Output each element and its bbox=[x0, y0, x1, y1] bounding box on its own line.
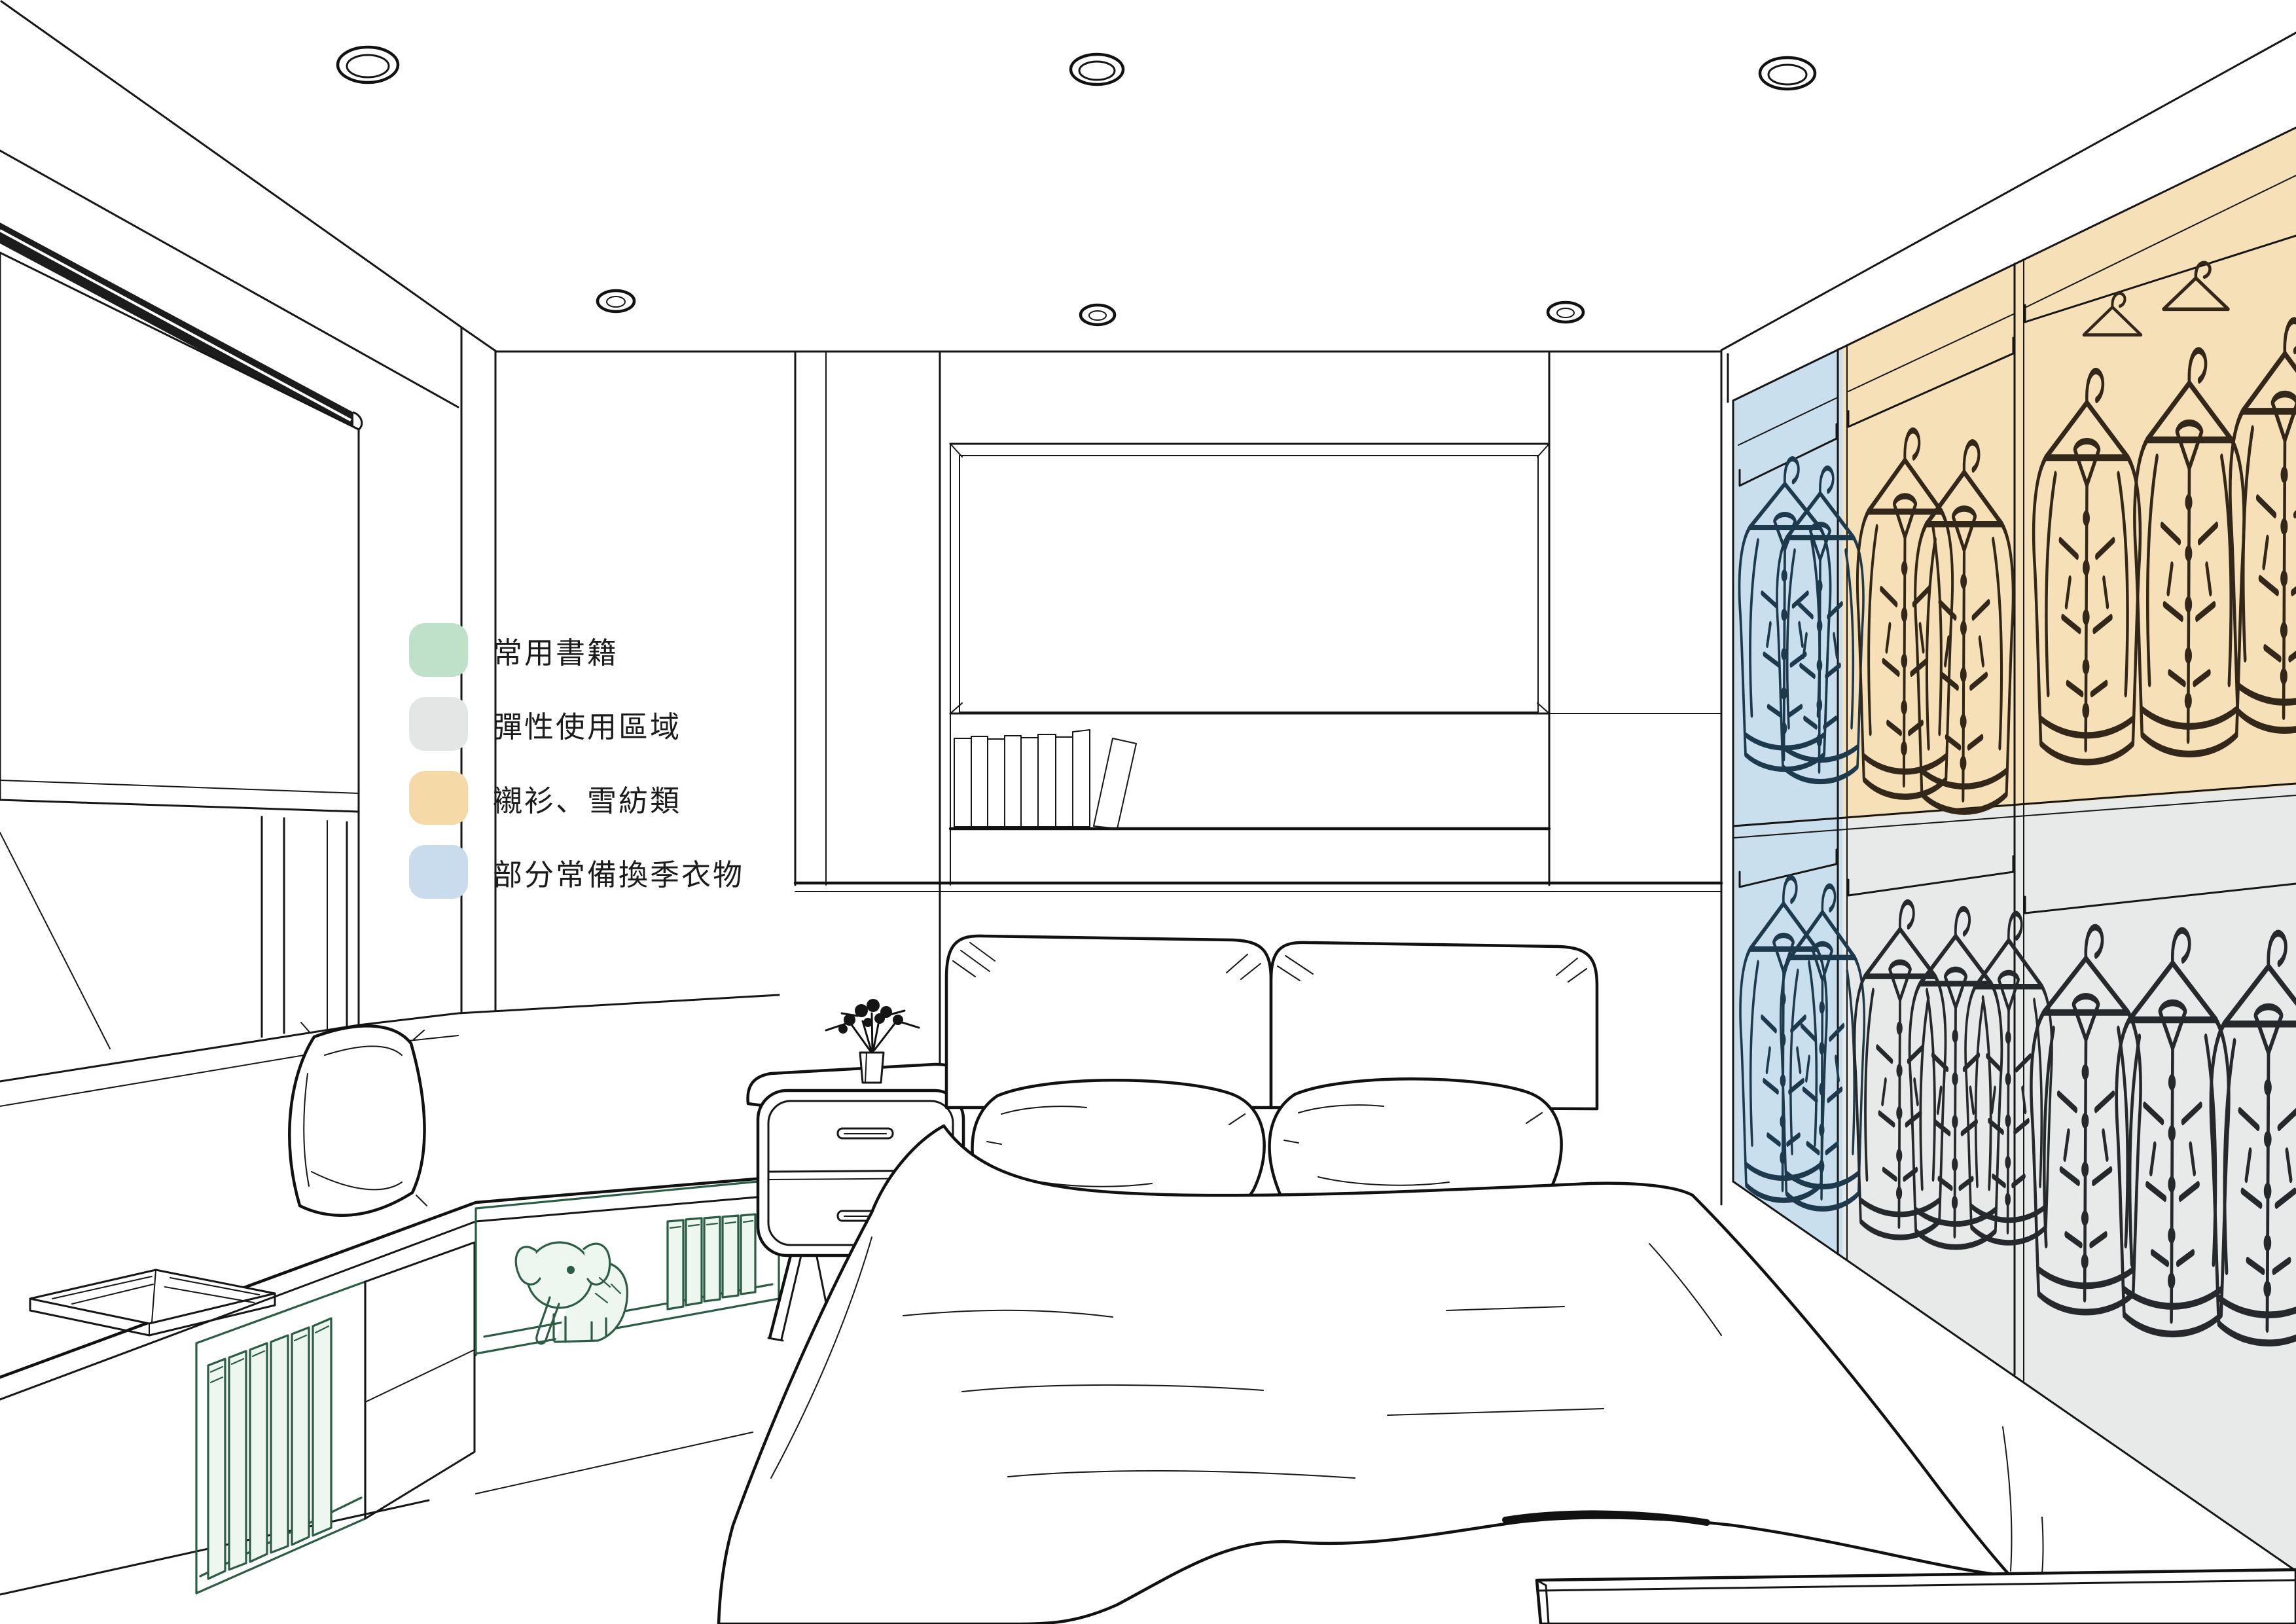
legend-label-seasonal: 部分常備換季衣物 bbox=[493, 851, 744, 893]
foot-bench bbox=[1537, 1570, 2296, 1624]
legend-item-shirts: 襯衫、雪紡類 bbox=[409, 771, 744, 825]
headboard-platform bbox=[795, 713, 1721, 892]
legend-item-flex: 彈性使用區域 bbox=[409, 697, 744, 751]
ceiling-lights bbox=[338, 47, 1815, 325]
cubby-books bbox=[208, 1318, 331, 1579]
window-wall bbox=[0, 223, 362, 1049]
legend-label-flex: 彈性使用區域 bbox=[493, 703, 681, 746]
niche-shelf-books bbox=[954, 730, 1136, 829]
legend-swatch-seasonal bbox=[409, 845, 468, 899]
zone-overlay-seasonal-blue bbox=[1733, 348, 1842, 1257]
leaning-book bbox=[1094, 738, 1136, 829]
legend: 常用書籍 彈性使用區域 襯衫、雪紡類 部分常備換季衣物 bbox=[409, 623, 744, 899]
legend-label-books: 常用書籍 bbox=[493, 629, 619, 672]
under-seat-flex-cubby bbox=[365, 1242, 475, 1519]
under-seat-book-cubby bbox=[196, 1282, 365, 1593]
legend-swatch-books bbox=[409, 623, 468, 677]
alcove-books bbox=[668, 1214, 755, 1309]
legend-swatch-flex bbox=[409, 697, 468, 751]
headboard-niche bbox=[950, 444, 1549, 829]
ceiling-light-front-right bbox=[1760, 58, 1815, 89]
legend-item-seasonal: 部分常備換季衣物 bbox=[409, 845, 744, 899]
upholstered-panel bbox=[960, 456, 1538, 712]
flower-heads bbox=[838, 999, 903, 1034]
ceiling-light-back-left bbox=[598, 291, 634, 312]
window-seat bbox=[0, 995, 779, 1595]
ceiling-light-back-right bbox=[1548, 302, 1583, 322]
bedroom-sketch-page: 常用書籍 彈性使用區域 襯衫、雪紡類 部分常備換季衣物 bbox=[0, 0, 2296, 1624]
seat-pillow bbox=[289, 1022, 427, 1216]
toy-alcove bbox=[476, 1180, 779, 1494]
legend-swatch-shirts bbox=[409, 771, 468, 825]
ceiling-light-front-left bbox=[338, 47, 398, 82]
legend-label-shirts: 襯衫、雪紡類 bbox=[493, 777, 681, 820]
ceiling-light-front-middle bbox=[1071, 54, 1123, 84]
legend-item-books: 常用書籍 bbox=[409, 623, 744, 677]
ceiling-light-back-middle bbox=[1081, 305, 1115, 325]
headboard-cushions bbox=[946, 936, 1597, 1109]
scene-drawing bbox=[0, 0, 2296, 1624]
